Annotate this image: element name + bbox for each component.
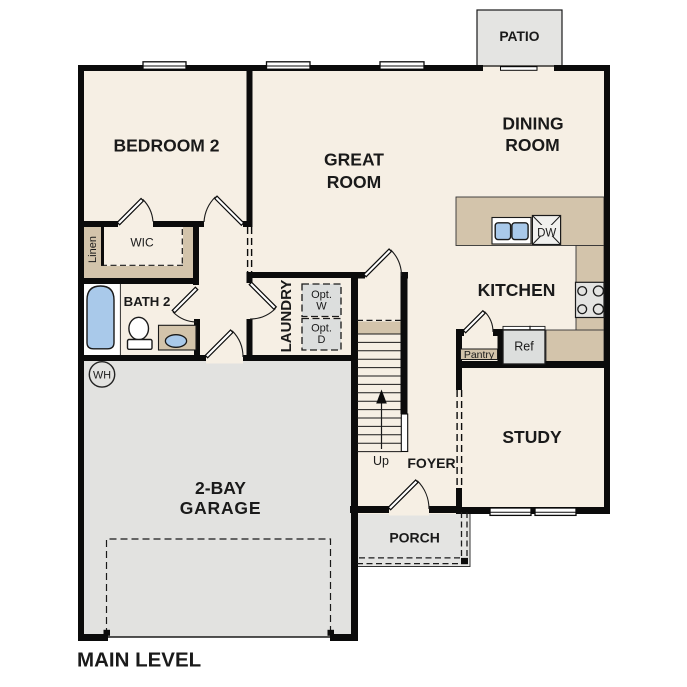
svg-text:Opt.: Opt. [311, 323, 332, 335]
svg-text:Linen: Linen [87, 236, 99, 263]
svg-text:BEDROOM 2: BEDROOM 2 [114, 136, 220, 156]
svg-text:PATIO: PATIO [499, 29, 539, 44]
svg-text:Ref: Ref [514, 339, 534, 353]
svg-text:WIC: WIC [130, 236, 154, 250]
svg-text:Opt.: Opt. [311, 289, 332, 301]
svg-text:D: D [318, 334, 326, 346]
svg-text:PORCH: PORCH [389, 530, 440, 546]
svg-text:GREAT: GREAT [324, 150, 384, 170]
svg-text:ROOM: ROOM [327, 172, 381, 192]
svg-text:WH: WH [93, 369, 111, 381]
svg-text:Up: Up [373, 454, 389, 468]
svg-text:BATH 2: BATH 2 [124, 294, 171, 309]
svg-text:2-BAY: 2-BAY [195, 478, 246, 498]
svg-text:KITCHEN: KITCHEN [478, 280, 556, 300]
svg-text:MAIN LEVEL: MAIN LEVEL [77, 649, 201, 672]
svg-text:Pantry: Pantry [464, 349, 495, 361]
svg-text:STUDY: STUDY [502, 427, 562, 447]
svg-text:DW: DW [537, 227, 556, 239]
svg-text:LAUNDRY: LAUNDRY [278, 280, 295, 353]
svg-text:ROOM: ROOM [505, 135, 559, 155]
svg-text:W: W [316, 301, 327, 313]
svg-text:FOYER: FOYER [407, 455, 455, 471]
svg-text:DINING: DINING [502, 114, 563, 134]
svg-text:GARAGE: GARAGE [180, 498, 262, 518]
